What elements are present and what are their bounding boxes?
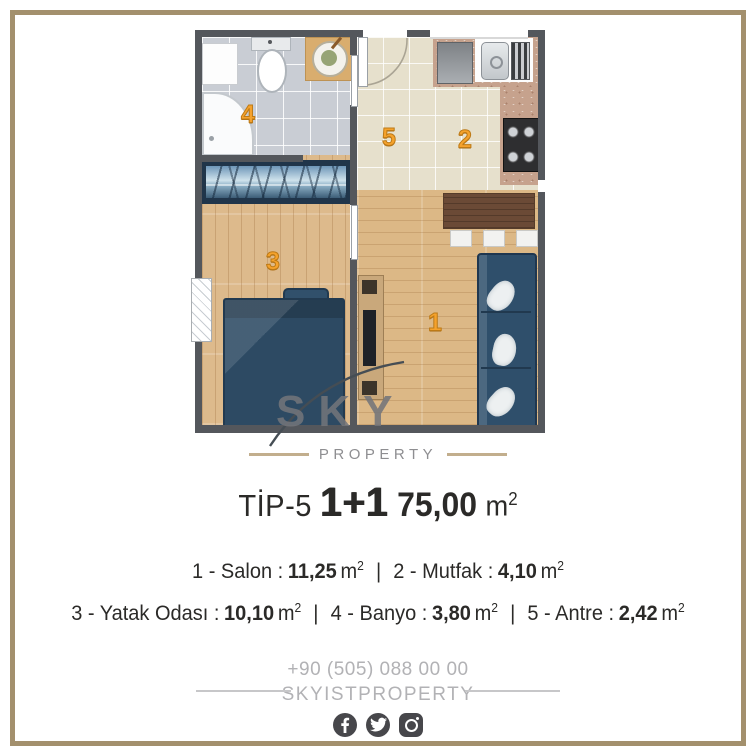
banyo-area: 3,80 bbox=[432, 601, 471, 625]
separator: | bbox=[376, 559, 381, 583]
room-number-banyo: 4 bbox=[241, 101, 255, 130]
instagram-flash bbox=[416, 717, 419, 720]
salon-area: 11,25 bbox=[288, 559, 337, 583]
footer-line-left bbox=[196, 690, 291, 692]
mutfak-unit: m2 bbox=[541, 559, 564, 583]
logo-sky-text: SKY bbox=[276, 390, 405, 434]
unit-type-code: TİP-5 bbox=[238, 488, 312, 524]
room-number-salon: 1 bbox=[428, 309, 442, 338]
antre-unit: m2 bbox=[661, 601, 684, 625]
footer-line-right bbox=[465, 690, 560, 692]
facebook-icon[interactable] bbox=[333, 713, 357, 737]
room-number-mutfak: 2 bbox=[458, 126, 472, 155]
banyo-label: 4 - Banyo : bbox=[331, 601, 428, 625]
logo-line-right bbox=[447, 453, 507, 456]
antre-label: 5 - Antre : bbox=[527, 601, 614, 625]
unit-area-value: 75,00 bbox=[397, 486, 477, 525]
room-details: 1 - Salon :11,25m2|2 - Mutfak :4,10m2 3 … bbox=[0, 558, 756, 642]
yatak-odasi-area: 10,10 bbox=[224, 601, 274, 625]
room-number-antre: 5 bbox=[382, 124, 396, 153]
social-handle: SKYISTPROPERTY bbox=[0, 684, 756, 706]
unit-layout: 1+1 bbox=[320, 479, 388, 526]
detail-line-1: 1 - Salon :11,25m2|2 - Mutfak :4,10m2 bbox=[26, 558, 729, 584]
twitter-icon[interactable] bbox=[366, 713, 390, 737]
footer: +90 (505) 088 00 00 SKYISTPROPERTY bbox=[0, 659, 756, 737]
instagram-icon[interactable] bbox=[399, 713, 423, 737]
logo-property-row: PROPERTY bbox=[0, 446, 756, 463]
salon-unit: m2 bbox=[340, 559, 363, 583]
yatak-odasi-unit: m2 bbox=[278, 601, 301, 625]
logo-line-left bbox=[249, 453, 309, 456]
phone-number: +90 (505) 088 00 00 bbox=[0, 659, 756, 681]
mutfak-label: 2 - Mutfak : bbox=[393, 559, 493, 583]
mutfak-area: 4,10 bbox=[498, 559, 537, 583]
room-number-yatak-odasi: 3 bbox=[266, 248, 280, 277]
salon-label: 1 - Salon : bbox=[192, 559, 283, 583]
unit-area-unit: m2 bbox=[486, 489, 518, 524]
instagram-lens bbox=[405, 719, 418, 732]
separator: | bbox=[510, 601, 515, 625]
detail-line-2: 3 - Yatak Odası :10,10m2|4 - Banyo :3,80… bbox=[26, 600, 729, 626]
banyo-unit: m2 bbox=[475, 601, 498, 625]
unit-title: TİP-5 1+1 75,00 m2 bbox=[23, 479, 734, 526]
flyer-canvas: { "colors": { "frame": "#a3906d", "wall"… bbox=[0, 0, 756, 756]
social-icons bbox=[0, 713, 756, 737]
antre-area: 2,42 bbox=[619, 601, 658, 625]
logo-property-text: PROPERTY bbox=[319, 446, 437, 463]
yatak-odasi-label: 3 - Yatak Odası : bbox=[71, 601, 219, 625]
separator: | bbox=[313, 601, 318, 625]
